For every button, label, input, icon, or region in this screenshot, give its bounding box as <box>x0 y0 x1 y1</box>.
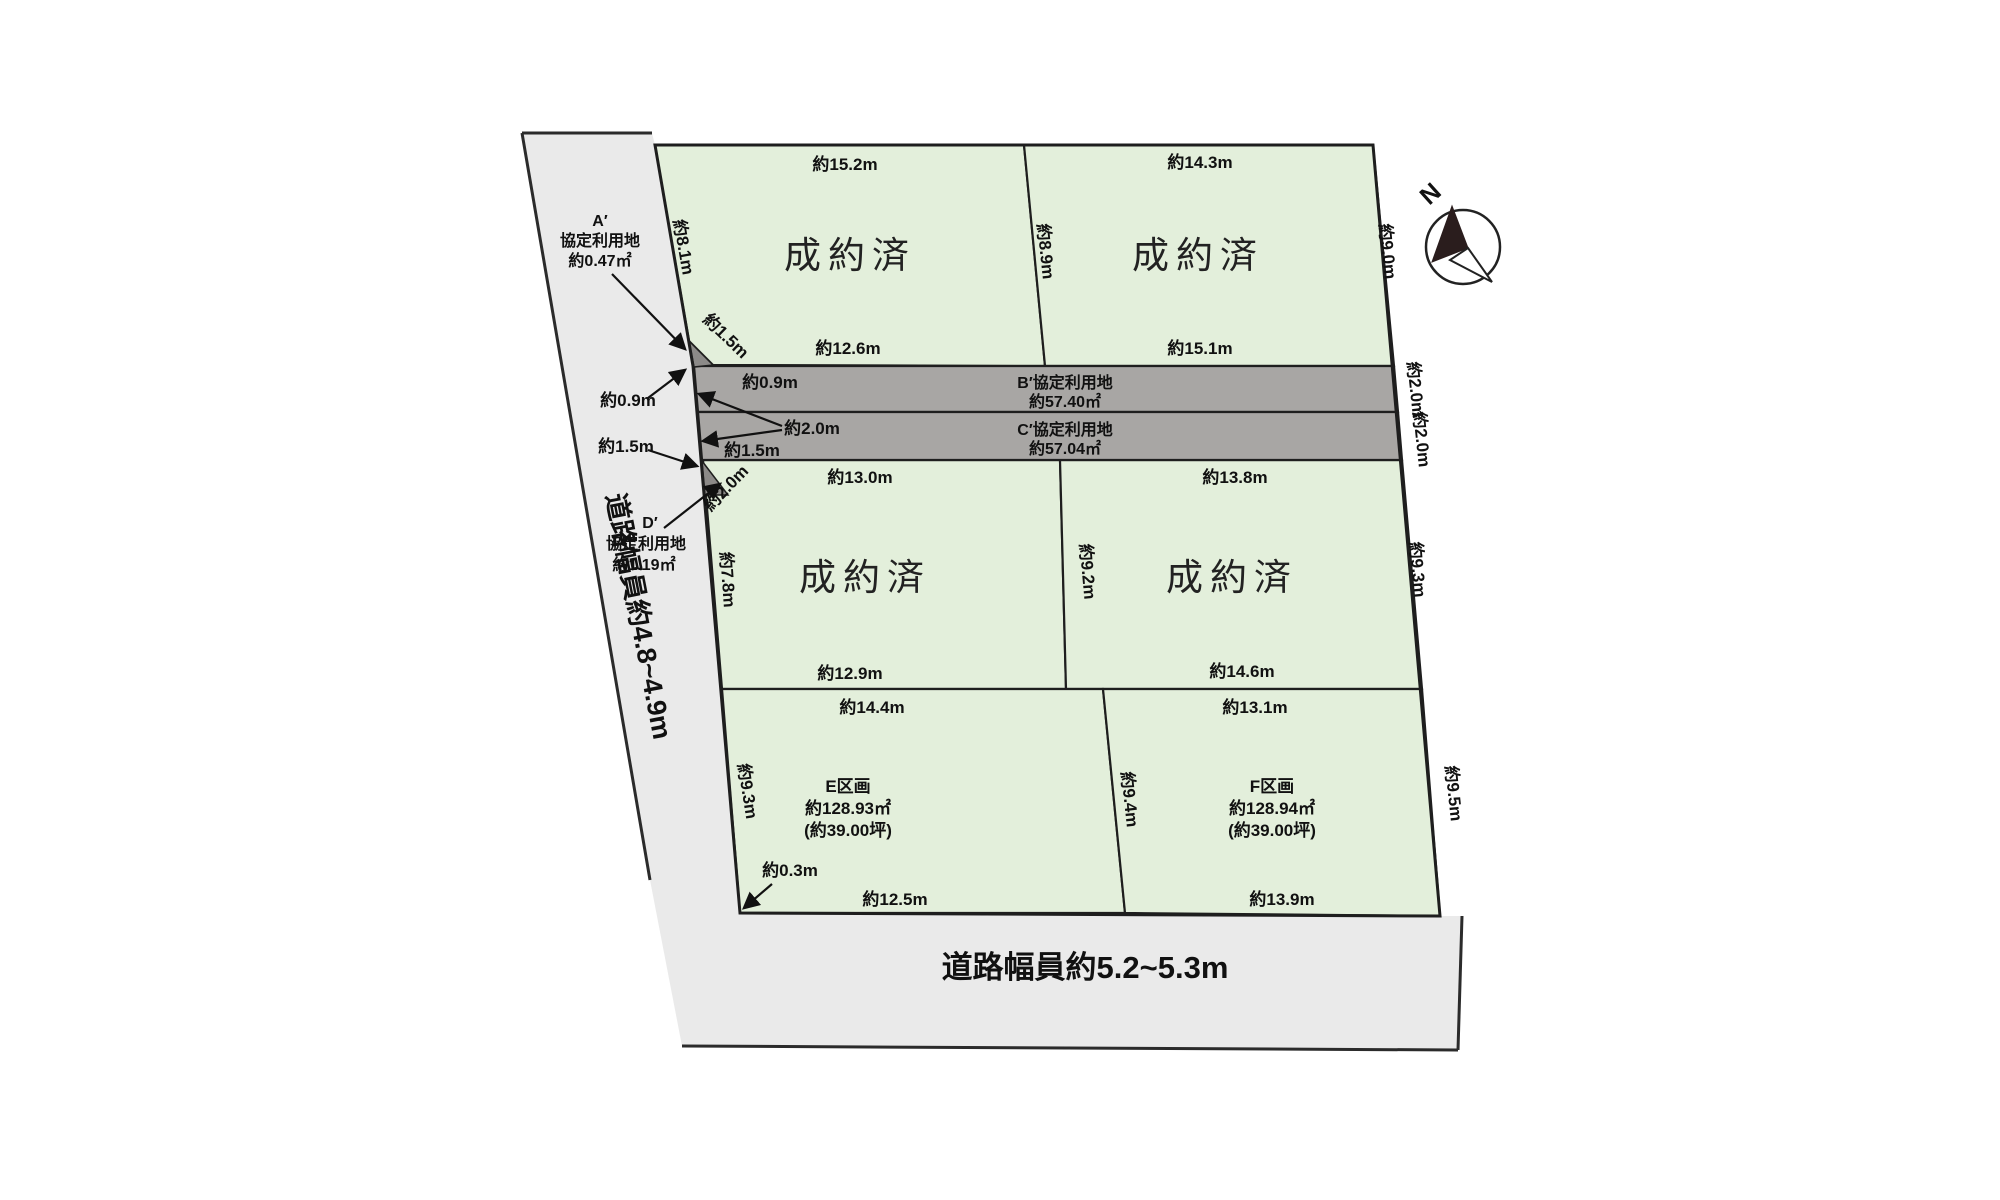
compass-north-label: N <box>1415 178 1447 211</box>
parcel-e-tsubo: (約39.00坪) <box>804 820 892 840</box>
note-corner-03: 約0.3m <box>762 860 818 880</box>
dim-mid-right-bottom: 約14.6m <box>1209 661 1274 681</box>
note-left-15: 約1.5m <box>598 436 654 456</box>
dim-f-bottom: 約13.9m <box>1249 889 1314 909</box>
parcel-top-right-status: 成約済 <box>1132 235 1264 276</box>
strip-b-name: B′協定利用地 <box>1017 373 1112 392</box>
note-inner-15: 約1.5m <box>724 440 780 460</box>
dim-strip-b-right: 約2.0m <box>1403 361 1429 419</box>
site-plan-page: 成約済 成約済 成約済 成約済 E区画 約128.93㎡ (約39.00坪) F… <box>0 0 2000 1200</box>
dim-mid-right-top: 約13.8m <box>1202 467 1267 487</box>
strip-c-area: 約57.04㎡ <box>1029 439 1101 458</box>
corner-lot-a-type: 協定利用地 <box>560 231 640 250</box>
corner-lot-a-area: 約0.47㎡ <box>568 251 631 270</box>
parcel-mid-right-status: 成約済 <box>1166 557 1298 598</box>
road-bottom-label: 道路幅員約5.2~5.3m <box>942 950 1229 985</box>
dim-e-top: 約14.4m <box>839 697 904 717</box>
dim-top-left-bottom: 約12.6m <box>815 338 880 358</box>
dim-mid-left-left: 約7.8m <box>716 551 740 608</box>
parcel-mid-left-status: 成約済 <box>799 557 931 598</box>
dim-f-top: 約13.1m <box>1222 697 1287 717</box>
parcel-top-left-status: 成約済 <box>784 235 916 276</box>
strip-c-name: C′協定利用地 <box>1017 420 1112 439</box>
note-inner-20: 約2.0m <box>784 418 840 438</box>
note-inner-09: 約0.9m <box>742 372 798 392</box>
dim-mid-left-bottom: 約12.9m <box>817 663 882 683</box>
dim-mid-left-top: 約13.0m <box>827 467 892 487</box>
parcel-f-name: F区画 <box>1250 777 1294 796</box>
dim-top-right-bottom: 約15.1m <box>1167 338 1232 358</box>
compass-needle-light <box>1450 248 1492 282</box>
site-plan-drawing: 成約済 成約済 成約済 成約済 E区画 約128.93㎡ (約39.00坪) F… <box>0 0 2000 1200</box>
dim-strip-c-right: 約2.0m <box>1409 411 1435 469</box>
parcel-e-area: 約128.93㎡ <box>805 798 891 818</box>
parcel-f-area: 約128.94㎡ <box>1229 798 1315 818</box>
dim-top-left-top: 約15.2m <box>812 154 877 174</box>
dim-f-right: 約9.5m <box>1441 765 1467 823</box>
compass: N <box>1415 178 1500 284</box>
parcel-f-tsubo: (約39.00坪) <box>1228 820 1316 840</box>
parcel-e-name: E区画 <box>825 777 870 796</box>
dim-top-right-top: 約14.3m <box>1167 152 1232 172</box>
dim-e-bottom: 約12.5m <box>862 889 927 909</box>
note-left-09: 約0.9m <box>600 390 656 410</box>
corner-lot-d-id: D′ <box>642 515 658 532</box>
corner-lot-a-id: A′ <box>592 213 608 230</box>
strip-b-area: 約57.40㎡ <box>1029 392 1101 411</box>
